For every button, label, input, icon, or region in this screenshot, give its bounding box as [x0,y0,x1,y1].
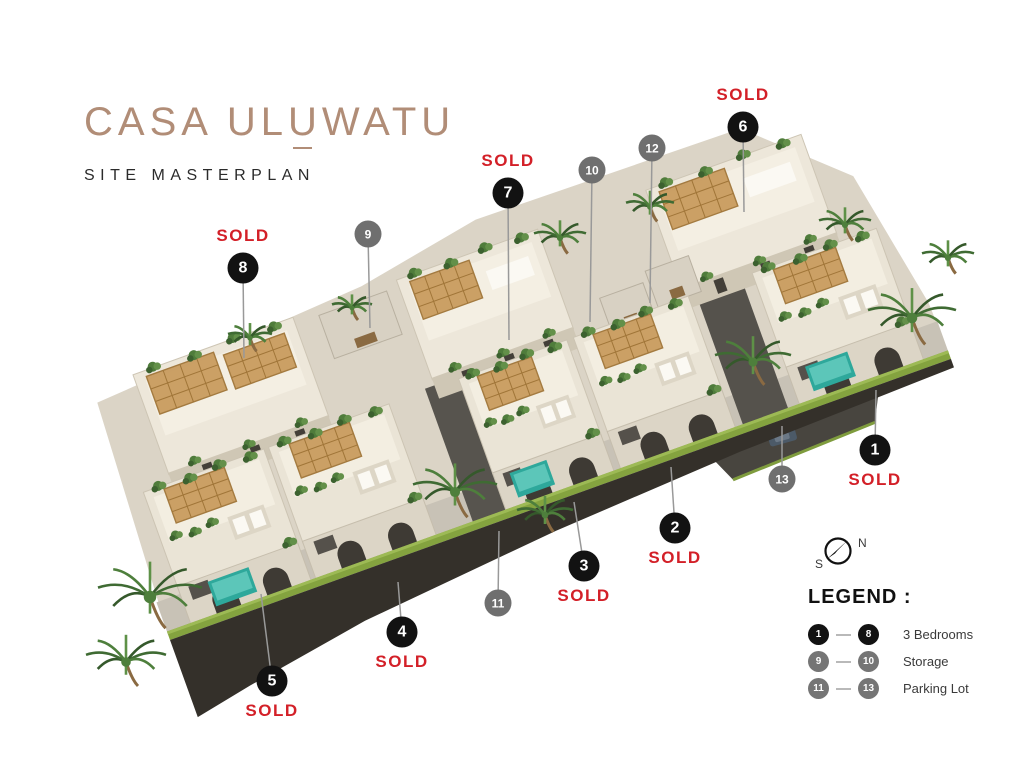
legend-circle-8: 8 [858,624,879,645]
legend-item-1: 183 Bedrooms [808,624,1018,645]
leader-line-unit-10 [590,170,592,322]
compass-icon: N S [812,530,884,580]
legend-item-3: 1113Parking Lot [808,678,1018,699]
leader-line-unit-4 [398,582,402,632]
compass-north-label: N [858,536,867,550]
leader-line-unit-5 [261,594,272,681]
legend-circle-1: 1 [808,624,829,645]
legend-label: 3 Bedrooms [903,627,973,642]
legend-circle-13: 13 [858,678,879,699]
project-title: CASA ULUWATU [84,100,455,145]
legend-circle-11: 11 [808,678,829,699]
leader-line-unit-7 [508,193,509,340]
legend-rows: 183 Bedrooms910Storage1113Parking Lot [808,624,1018,699]
legend-range-dash [836,688,851,690]
compass-south-label: S [815,557,823,571]
legend: LEGEND : 183 Bedrooms910Storage1113Parki… [808,586,1018,705]
leader-line-unit-1 [875,390,876,450]
legend-label: Storage [903,654,949,669]
legend-range-dash [836,661,851,663]
header: CASA ULUWATU SITE MASTERPLAN [84,100,455,185]
legend-item-2: 910Storage [808,651,1018,672]
legend-label: Parking Lot [903,681,969,696]
leader-line-unit-9 [368,234,370,328]
title-part: WATU [322,100,455,144]
legend-title: LEGEND : [808,586,1018,609]
leader-line-unit-2 [671,467,675,528]
legend-range-dash [836,634,851,636]
legend-circle-10: 10 [858,651,879,672]
title-part: CASA UL [84,100,288,144]
page-subtitle: SITE MASTERPLAN [84,167,455,185]
leader-line-unit-3 [574,502,584,566]
leader-line-unit-12 [650,148,652,303]
masterplan-poster: 1SOLD2SOLD3SOLD4SOLD5SOLD6SOLD7SOLD8SOLD… [0,0,1024,768]
leader-line-unit-6 [743,127,744,212]
leader-line-unit-11 [498,531,499,603]
legend-circle-9: 9 [808,651,829,672]
compass-ring [826,539,851,564]
leader-line-unit-8 [243,268,244,358]
title-accent-letter: U [288,100,322,145]
